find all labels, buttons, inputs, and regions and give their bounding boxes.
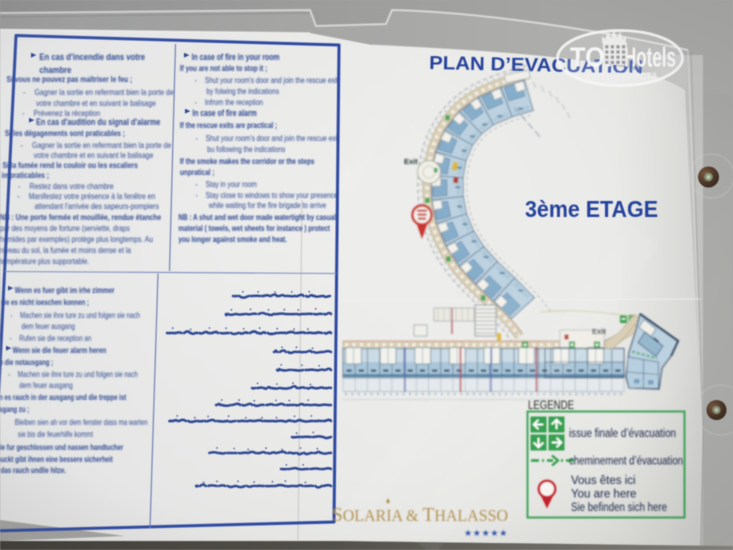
svg-text:★: ★ <box>473 528 481 538</box>
svg-text:Sie befinden sich here: Sie befinden sich here <box>571 502 667 514</box>
svg-text:★: ★ <box>482 528 490 538</box>
svg-text:cheminement d’évacuation: cheminement d’évacuation <box>569 456 683 468</box>
svg-text:issue finale d’évacuation: issue finale d’évacuation <box>569 428 676 440</box>
svg-text:Vous êtes ici: Vous êtes ici <box>571 475 636 487</box>
svg-text:Exit: Exit <box>404 157 418 166</box>
svg-text:Hotels: Hotels <box>624 42 676 73</box>
svg-text:You are here: You are here <box>571 489 636 501</box>
svg-text:★: ★ <box>499 528 507 538</box>
svg-text:LEGENDE: LEGENDE <box>528 400 574 412</box>
svg-text:3ème ETAGE: 3ème ETAGE <box>525 196 658 222</box>
svg-text:ФОТО ТУРИСТА: ФОТО ТУРИСТА <box>585 71 658 83</box>
svg-text:SOLARIA & THALASSO: SOLARIA & THALASSO <box>332 504 508 526</box>
svg-text:★: ★ <box>464 528 472 538</box>
svg-text:★: ★ <box>490 528 498 538</box>
